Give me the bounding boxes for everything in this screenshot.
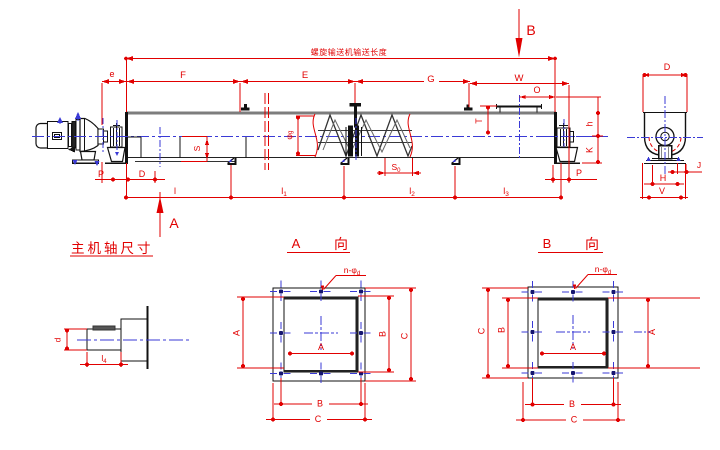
svg-text:O: O bbox=[533, 85, 540, 95]
svg-text:φg: φg bbox=[284, 130, 294, 140]
svg-text:K: K bbox=[585, 147, 595, 153]
svg-text:B: B bbox=[317, 399, 323, 409]
svg-text:V: V bbox=[659, 186, 665, 196]
svg-text:h: h bbox=[585, 121, 595, 126]
svg-text:B: B bbox=[378, 331, 388, 337]
svg-text:C: C bbox=[571, 415, 578, 425]
svg-text:J: J bbox=[697, 160, 701, 170]
svg-text:l: l bbox=[174, 186, 176, 196]
svg-text:E: E bbox=[302, 70, 308, 81]
svg-text:C: C bbox=[477, 327, 487, 334]
svg-text:B: B bbox=[497, 327, 507, 333]
svg-text:d: d bbox=[53, 337, 63, 342]
svg-text:向: 向 bbox=[334, 236, 348, 252]
svg-text:l3: l3 bbox=[503, 186, 509, 198]
svg-text:B: B bbox=[569, 399, 575, 409]
svg-text:P: P bbox=[98, 169, 104, 179]
svg-text:G: G bbox=[427, 74, 434, 85]
svg-text:A: A bbox=[169, 215, 179, 231]
svg-text:向: 向 bbox=[585, 236, 599, 252]
svg-text:S: S bbox=[192, 145, 202, 151]
svg-text:A: A bbox=[570, 342, 576, 352]
svg-text:主机轴尺寸: 主机轴尺寸 bbox=[71, 241, 154, 256]
svg-text:B: B bbox=[526, 22, 535, 38]
svg-text:P: P bbox=[576, 168, 582, 178]
svg-text:T: T bbox=[474, 118, 484, 124]
svg-text:l2: l2 bbox=[409, 186, 415, 198]
svg-text:D: D bbox=[139, 169, 146, 179]
svg-text:F: F bbox=[180, 70, 186, 81]
svg-text:D: D bbox=[664, 62, 671, 72]
svg-text:S0: S0 bbox=[391, 162, 401, 174]
svg-text:H: H bbox=[660, 173, 667, 183]
svg-text:C: C bbox=[315, 414, 322, 424]
svg-text:B: B bbox=[543, 236, 552, 251]
svg-text:C: C bbox=[400, 332, 410, 339]
svg-text:螺旋输送机输送长度: 螺旋输送机输送长度 bbox=[311, 47, 388, 57]
svg-text:l4: l4 bbox=[101, 353, 107, 365]
svg-text:W: W bbox=[515, 73, 524, 84]
svg-text:e: e bbox=[109, 69, 114, 79]
svg-text:l1: l1 bbox=[281, 186, 287, 198]
svg-text:A: A bbox=[292, 236, 301, 251]
svg-text:A: A bbox=[318, 342, 324, 352]
svg-text:A: A bbox=[232, 330, 242, 336]
